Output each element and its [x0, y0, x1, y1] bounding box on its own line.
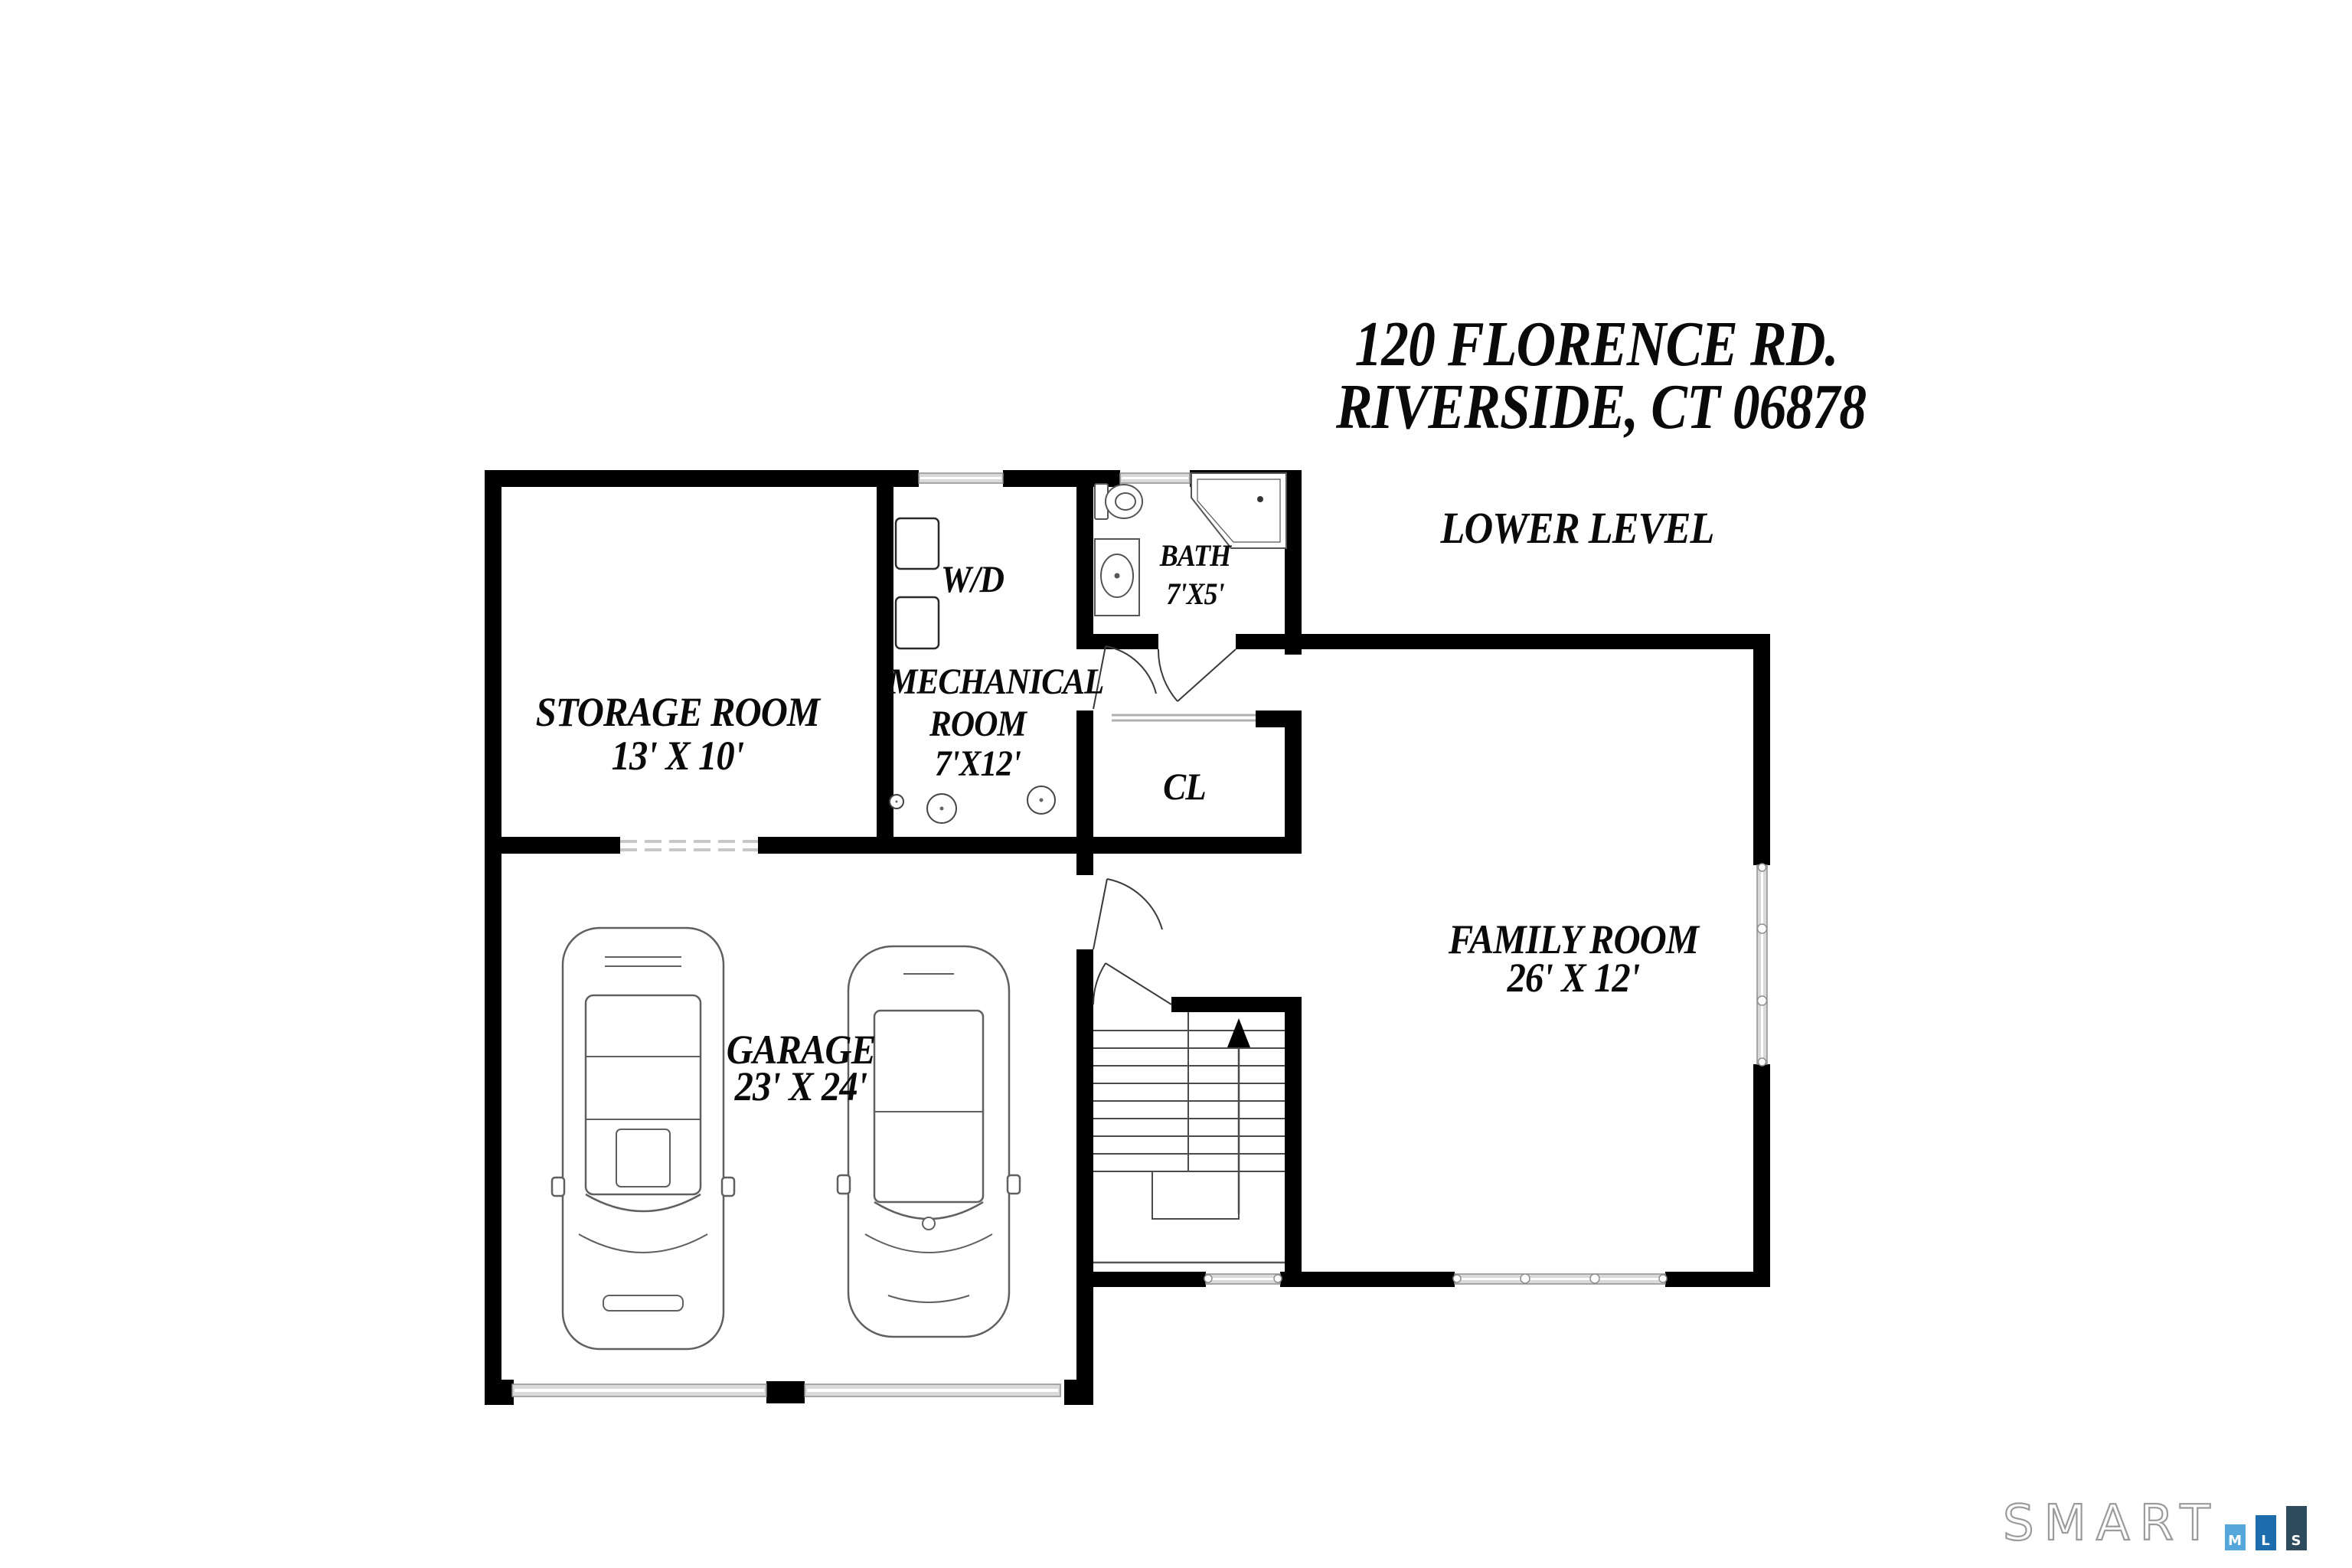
- garage-door-right: [805, 1384, 1060, 1396]
- room-label-storage-dims: 13' X 10': [505, 733, 850, 779]
- washer-dryer-label: W/D: [903, 557, 1041, 600]
- level-label: LOWER LEVEL: [1405, 504, 1749, 553]
- smartmls-l-letter: L: [2261, 1534, 2269, 1550]
- window-stair-bottom: [1204, 1274, 1282, 1284]
- smartmls-logo: SMART M L S: [2003, 1497, 2307, 1550]
- stairs: [1093, 1012, 1285, 1263]
- smartmls-s-square: S: [2286, 1506, 2307, 1550]
- smartmls-m-square: M: [2225, 1524, 2246, 1550]
- room-label-storage-name: STORAGE ROOM: [505, 689, 850, 735]
- room-label-closet: CL: [1116, 765, 1253, 808]
- window-family-bottom: [1453, 1274, 1667, 1284]
- garage-door-left: [512, 1384, 766, 1396]
- room-label-bath-dims: 7'X5': [1126, 577, 1264, 612]
- room-label-mechanical-line1: MECHANICAL: [888, 661, 1067, 703]
- car-right-icon: [838, 946, 1020, 1337]
- room-label-bath-name: BATH: [1126, 538, 1264, 573]
- room-label-garage-dims: 23' X 24': [663, 1063, 939, 1109]
- smartmls-wordmark: SMART: [2003, 1497, 2220, 1550]
- room-label-family-dims: 26' X 12': [1436, 955, 1711, 1001]
- door-garage-entry: [1093, 879, 1162, 949]
- window-bath-top: [1120, 473, 1190, 483]
- window-mechanical-top: [919, 473, 1003, 483]
- toilet-icon: [1095, 484, 1142, 519]
- smartmls-s-letter: S: [2292, 1534, 2301, 1550]
- smartmls-l-square: L: [2256, 1515, 2276, 1550]
- closet-slider: [1112, 715, 1256, 720]
- room-label-mechanical-line2: ROOM: [888, 704, 1067, 745]
- stairs-up-arrow-icon: [1227, 1018, 1250, 1047]
- room-label-mechanical-dims: 7'X12': [888, 743, 1067, 785]
- corner-shower-icon: [1191, 473, 1286, 548]
- dashed-opening: [620, 841, 758, 850]
- door-stair-hall: [1093, 963, 1171, 1004]
- address-line-1: 120 FLORENCE RD.: [1336, 309, 1857, 380]
- smartmls-m-letter: M: [2228, 1534, 2242, 1550]
- car-left-icon: [552, 928, 734, 1349]
- doors: [1093, 646, 1236, 1004]
- address-line-2: RIVERSIDE, CT 06878: [1336, 372, 1857, 443]
- mechanical-equipment-icons: [890, 786, 1055, 823]
- floor-plan-page: { "title": { "line1": "120 FLORENCE RD."…: [0, 0, 2352, 1568]
- door-bath: [1158, 649, 1236, 701]
- window-family-right: [1757, 864, 1767, 1066]
